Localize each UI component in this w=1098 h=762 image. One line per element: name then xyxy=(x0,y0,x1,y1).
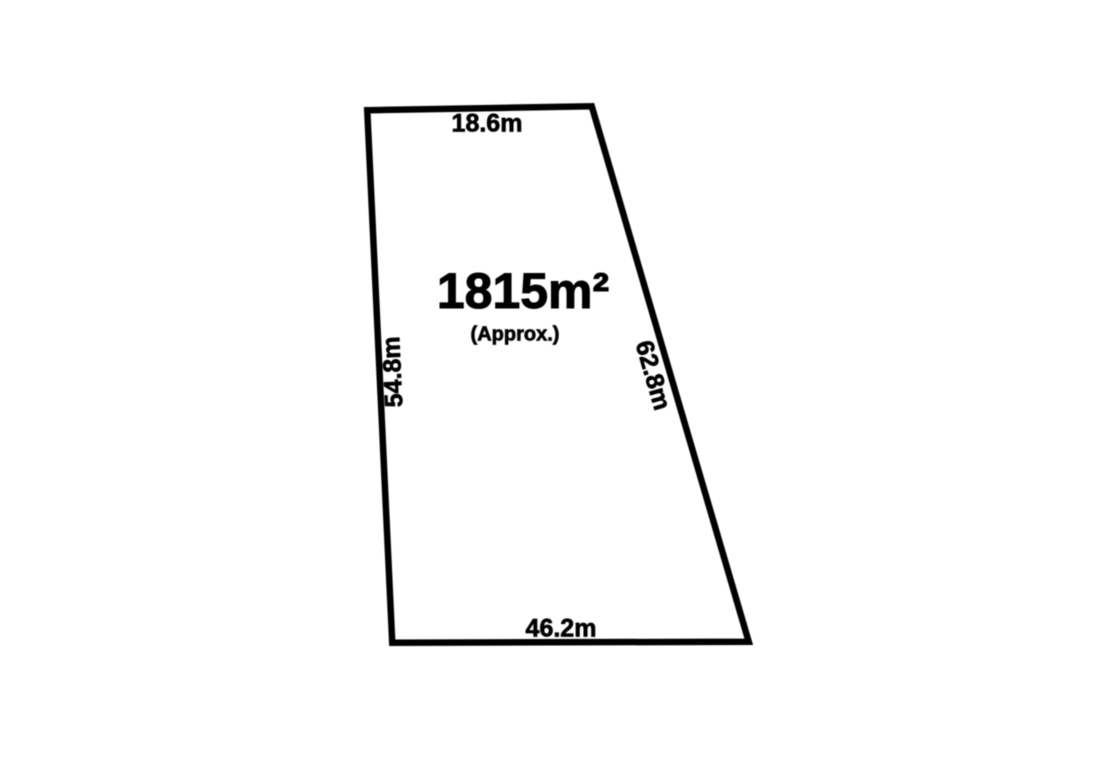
svg-text:54.8m: 54.8m xyxy=(377,336,408,408)
svg-text:46.2m: 46.2m xyxy=(526,615,597,643)
svg-text:(Approx.): (Approx.) xyxy=(471,324,560,346)
svg-text:18.6m: 18.6m xyxy=(452,110,523,138)
svg-text:1815m²: 1815m² xyxy=(437,263,609,319)
